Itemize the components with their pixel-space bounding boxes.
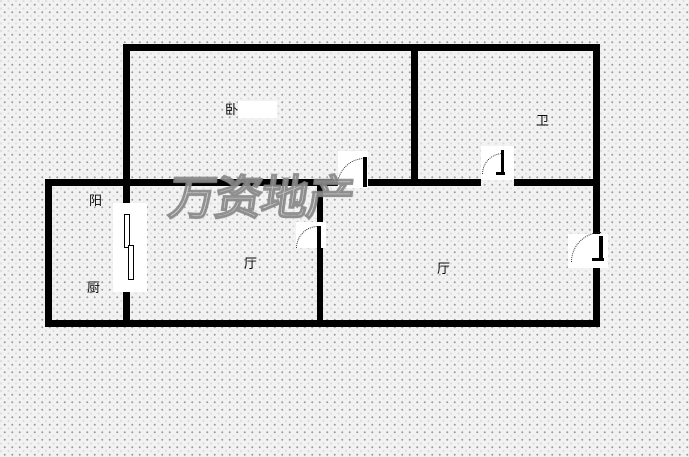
entry-door-hinge-icon xyxy=(592,258,604,261)
wall-top xyxy=(123,44,600,51)
wall-right-upper xyxy=(593,44,600,236)
sliding-door-leaf2-icon xyxy=(128,245,134,280)
wall-hall-lower xyxy=(317,248,323,321)
hall-door-leaf-icon xyxy=(317,226,321,248)
bedroom-label-patch xyxy=(238,101,277,118)
bathroom-door-hinge-icon xyxy=(496,172,505,175)
wall-left xyxy=(45,179,52,327)
sliding-door-leaf1-icon xyxy=(124,214,130,248)
wall-right-lower xyxy=(593,266,600,327)
agency-watermark: 万资地产 xyxy=(166,176,357,223)
bedroom-door-leaf-icon xyxy=(363,157,367,187)
wall-bedroom-bath-divider xyxy=(411,44,418,186)
wall-bedroom-left-lower xyxy=(123,292,130,321)
room-label-kitchen: 厨 xyxy=(87,281,100,296)
wall-mid-horizontal-b xyxy=(368,179,481,186)
room-label-balcony: 阳 xyxy=(89,194,102,209)
wall-bedroom-left-upper xyxy=(123,44,130,203)
wall-mid-horizontal-c xyxy=(514,179,600,186)
room-label-hall: 厅 xyxy=(244,257,257,272)
floorplan-canvas: 卧 卫 阳 厨 厅 厅 万资地产 xyxy=(0,0,689,457)
room-label-living: 厅 xyxy=(437,262,450,277)
room-label-bedroom: 卧 xyxy=(225,103,238,118)
wall-bottom xyxy=(45,320,600,327)
room-label-bathroom: 卫 xyxy=(536,114,549,129)
